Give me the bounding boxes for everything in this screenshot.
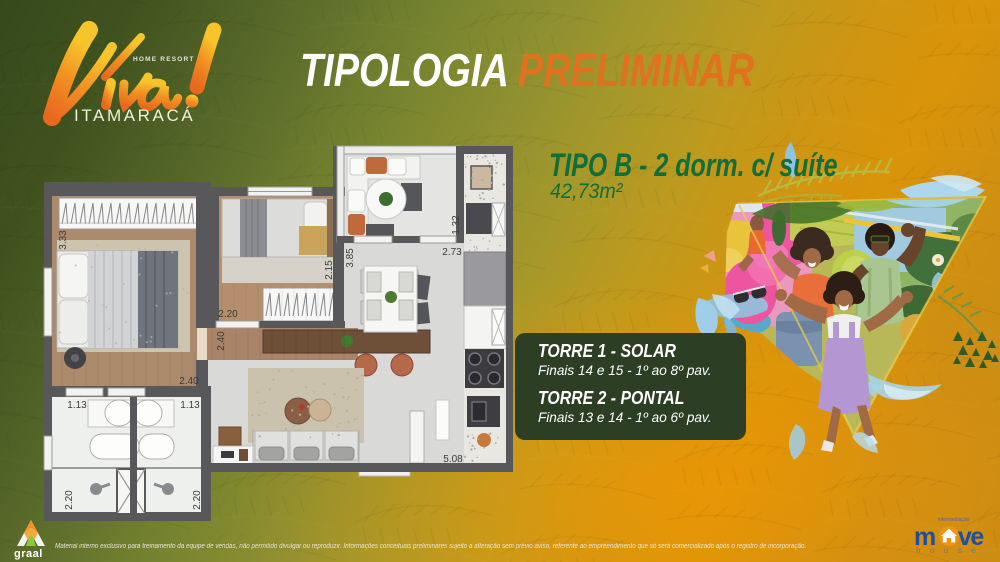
svg-text:2.40: 2.40 <box>179 376 199 387</box>
svg-text:ITAMARACÁ: ITAMARACÁ <box>74 106 195 125</box>
svg-text:3.33: 3.33 <box>58 230 69 250</box>
svg-text:2.73: 2.73 <box>442 247 462 258</box>
svg-text:1.13: 1.13 <box>180 400 200 411</box>
svg-text:2.40: 2.40 <box>216 331 227 351</box>
svg-text:1.32: 1.32 <box>451 215 462 235</box>
svg-text:2.20: 2.20 <box>218 309 238 320</box>
svg-text:5.08: 5.08 <box>443 454 463 465</box>
svg-text:1.13: 1.13 <box>67 400 87 411</box>
svg-text:2.20: 2.20 <box>192 490 203 510</box>
svg-text:3.85: 3.85 <box>345 248 356 268</box>
svg-text:2.15: 2.15 <box>324 260 335 280</box>
svg-text:HOME RESORT: HOME RESORT <box>133 56 195 63</box>
svg-text:2.20: 2.20 <box>64 490 75 510</box>
svg-text:graal: graal <box>14 548 43 560</box>
svg-text:house: house <box>916 546 985 555</box>
